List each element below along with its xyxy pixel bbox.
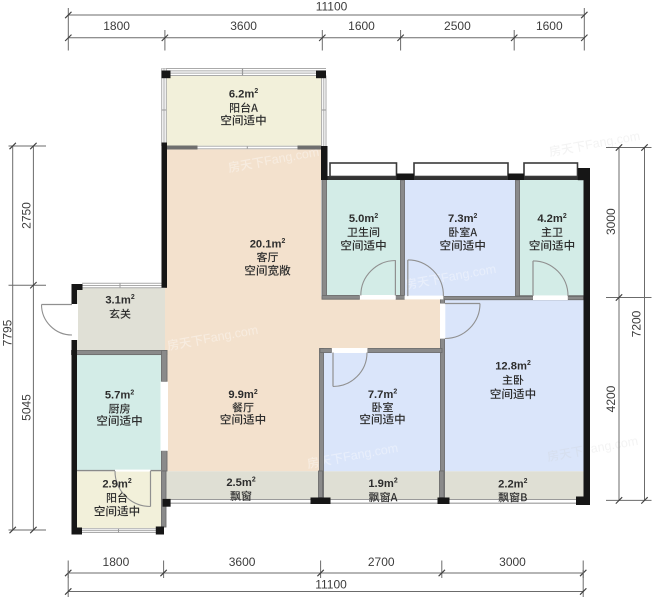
svg-text:1600: 1600 (536, 19, 563, 33)
svg-text:4.2m2: 4.2m2 (537, 213, 567, 225)
svg-text:7795: 7795 (0, 319, 14, 346)
svg-text:4200: 4200 (604, 385, 618, 412)
svg-text:3.1m2: 3.1m2 (105, 294, 135, 306)
svg-text:20.1m2: 20.1m2 (250, 238, 286, 250)
svg-text:2750: 2750 (20, 202, 34, 229)
svg-text:6.2m2: 6.2m2 (229, 88, 259, 100)
svg-text:2.2m2: 2.2m2 (498, 478, 528, 490)
svg-text:9.9m2: 9.9m2 (228, 389, 258, 401)
svg-text:2700: 2700 (368, 555, 395, 569)
svg-text:3600: 3600 (229, 555, 256, 569)
svg-text:5045: 5045 (20, 394, 34, 421)
svg-text:5.0m2: 5.0m2 (349, 213, 379, 225)
svg-text:7.7m2: 7.7m2 (368, 389, 398, 401)
svg-text:11100: 11100 (315, 578, 347, 592)
svg-text:2.9m2: 2.9m2 (102, 478, 132, 490)
svg-text:3600: 3600 (230, 19, 257, 33)
svg-text:2500: 2500 (444, 19, 471, 33)
svg-text:3000: 3000 (604, 208, 618, 235)
svg-text:1.9m2: 1.9m2 (368, 478, 398, 490)
svg-text:1800: 1800 (103, 555, 130, 569)
svg-text:7.3m2: 7.3m2 (448, 213, 478, 225)
svg-text:5.7m2: 5.7m2 (105, 389, 135, 401)
svg-text:2.5m2: 2.5m2 (226, 477, 256, 489)
svg-text:7200: 7200 (630, 310, 644, 337)
svg-text:11100: 11100 (316, 0, 348, 14)
svg-text:3000: 3000 (499, 555, 526, 569)
svg-text:1800: 1800 (103, 19, 130, 33)
svg-text:1600: 1600 (348, 19, 375, 33)
svg-text:12.8m2: 12.8m2 (495, 360, 531, 372)
